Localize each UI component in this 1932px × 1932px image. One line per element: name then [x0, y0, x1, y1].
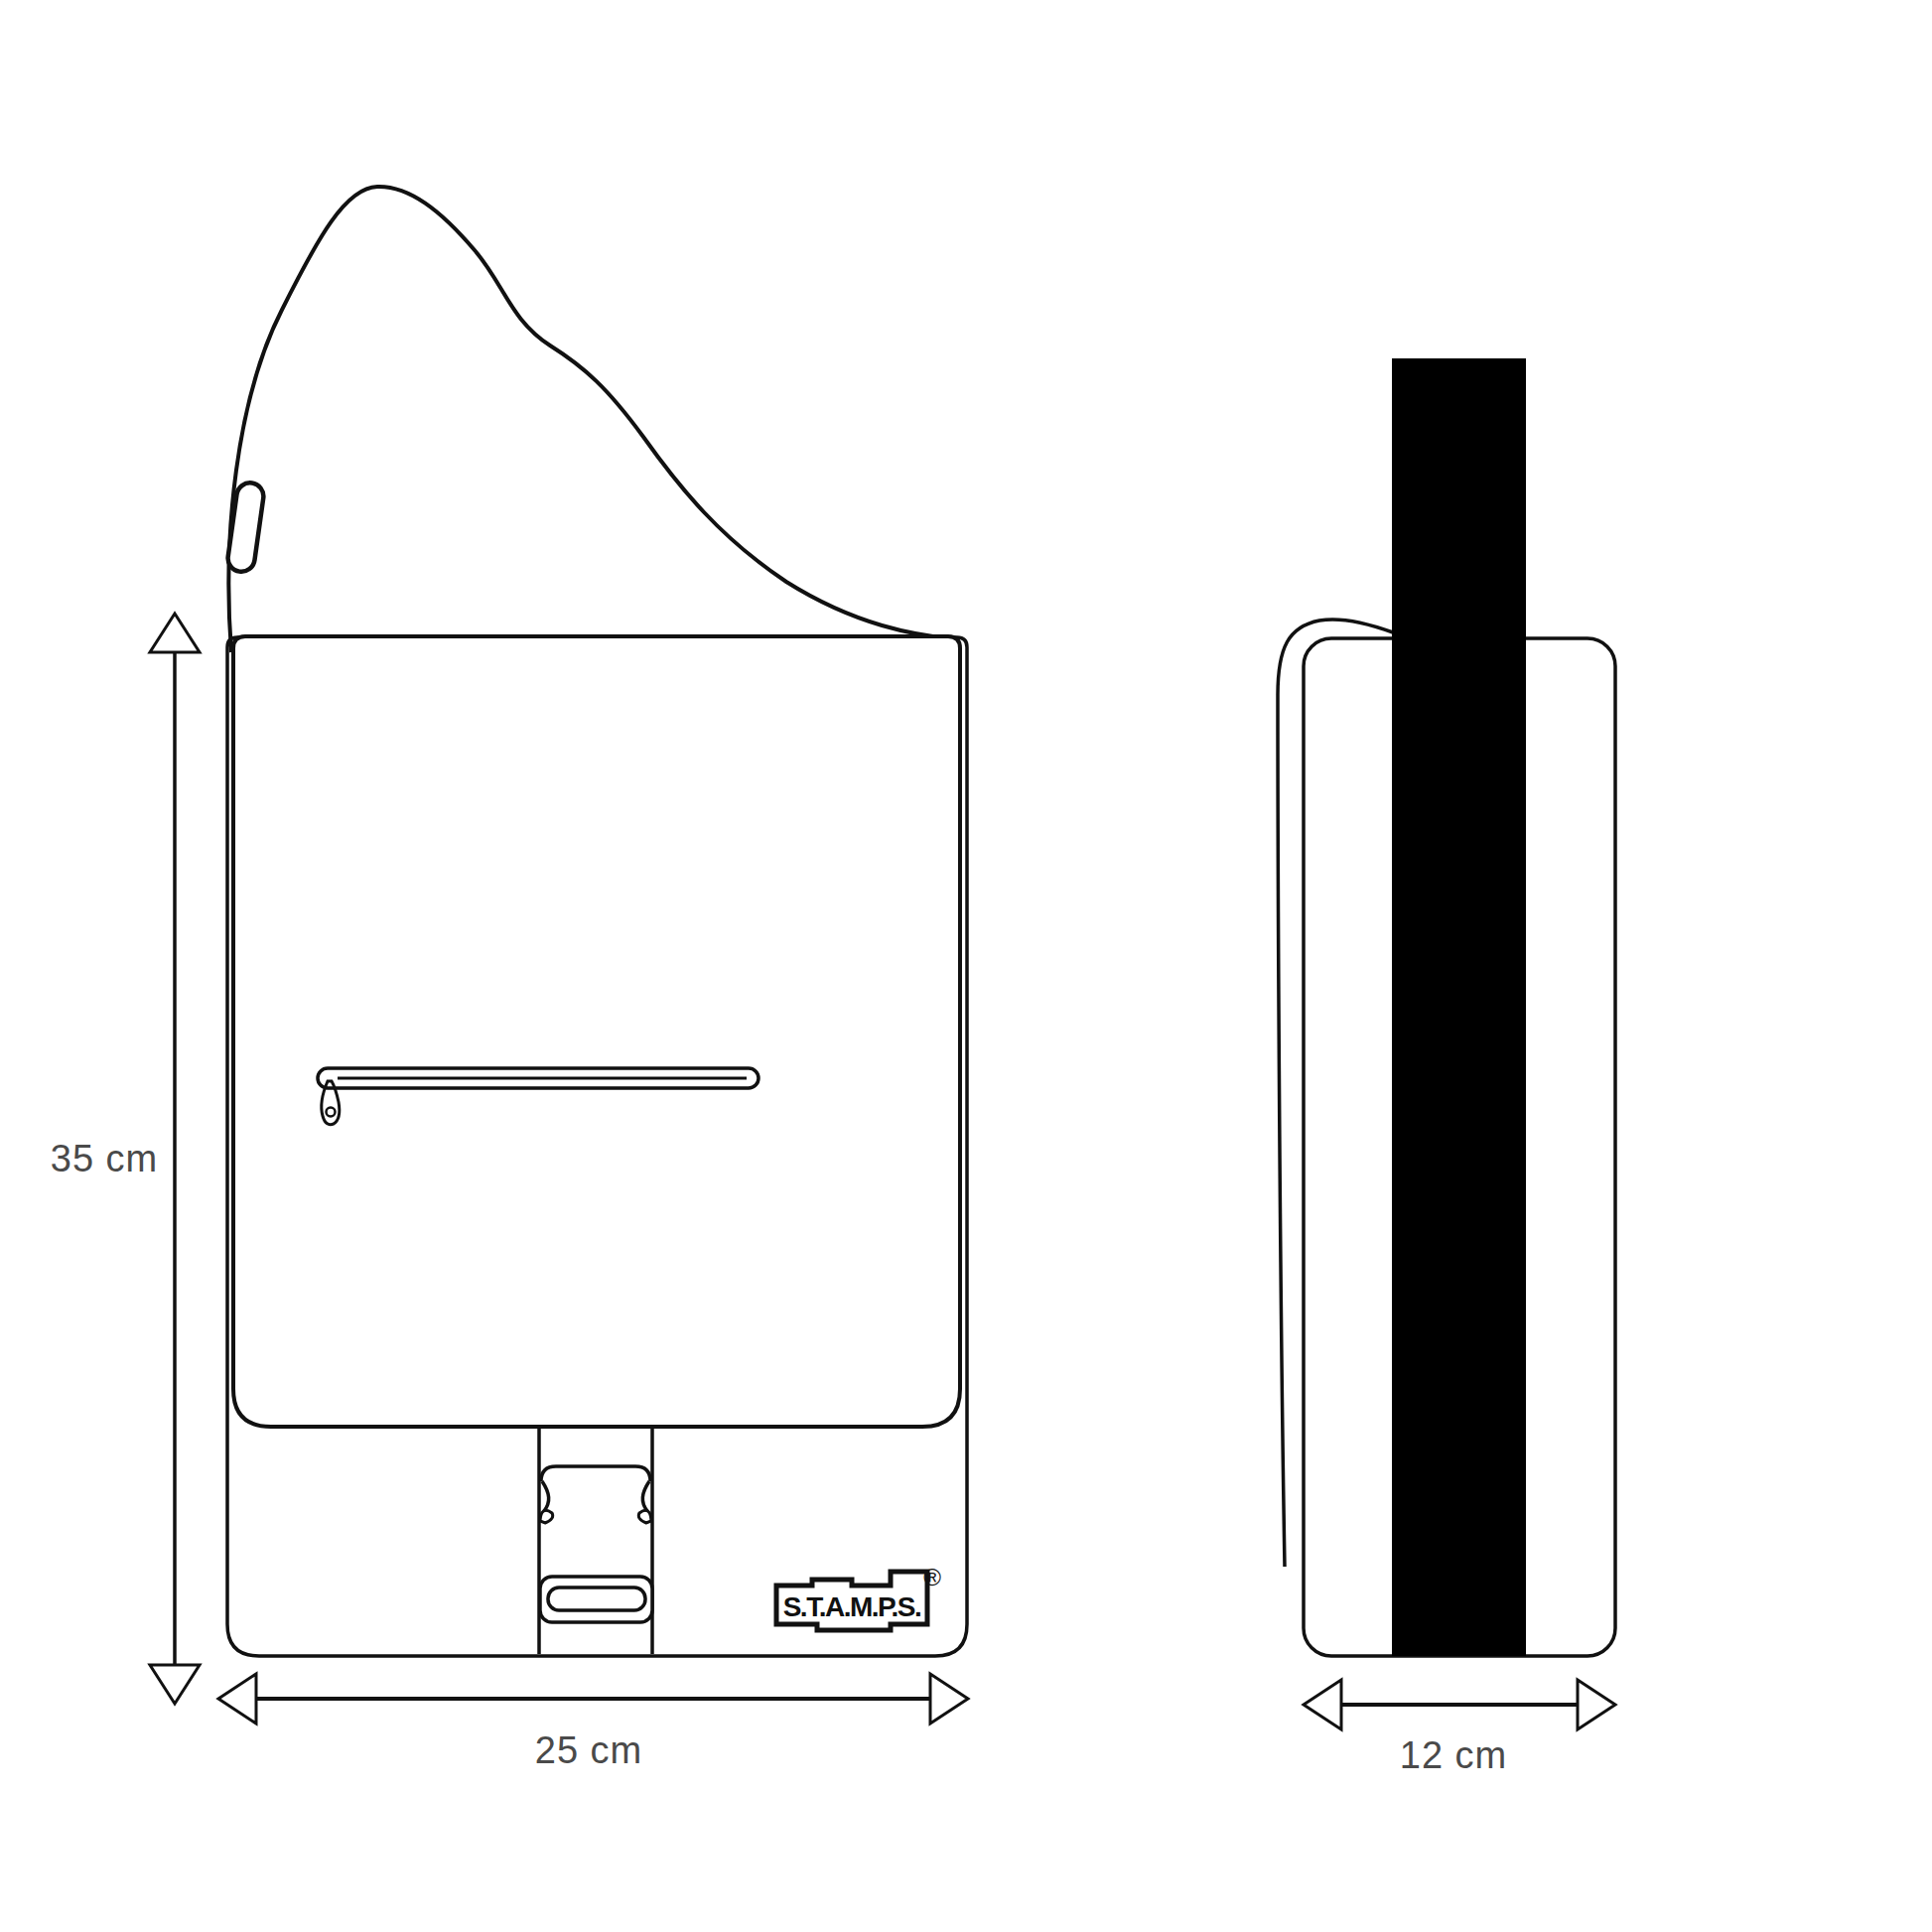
front-width-arrow-left-icon: [218, 1674, 256, 1724]
buckle-ear-left: [540, 1510, 553, 1523]
buckle-top-bar: [541, 1466, 650, 1481]
buckle-waist-left: [542, 1481, 549, 1511]
buckle-ear-right: [638, 1510, 651, 1523]
side-width-arrow-right-icon: [1578, 1680, 1615, 1729]
side-view: [1278, 358, 1615, 1656]
buckle-waist-right: [642, 1481, 649, 1511]
side-width-arrow-left-icon: [1304, 1680, 1341, 1729]
bag-flap-outline: [233, 636, 960, 1427]
height-arrow-up-icon: [150, 614, 200, 652]
bottom-strap-buckle: [539, 1429, 652, 1654]
side-width-dimension: [1304, 1680, 1615, 1729]
front-width-arrow-right-icon: [930, 1674, 968, 1724]
bag-dimension-diagram-page: { "diagram": { "front_view": { "height_l…: [0, 0, 1932, 1932]
side-flap-edge: [1278, 620, 1393, 1567]
height-arrow-down-icon: [150, 1665, 200, 1704]
bag-technical-drawing: S.T.A.M.P.S. ®: [0, 0, 1932, 1932]
brand-logo-text: S.T.A.M.P.S.: [783, 1591, 921, 1622]
height-label: 35 cm: [15, 1138, 194, 1180]
width-label: 25 cm: [499, 1729, 678, 1772]
shoulder-strap-outline: [228, 187, 956, 652]
side-width-label: 12 cm: [1364, 1734, 1543, 1777]
brand-logo: S.T.A.M.P.S. ®: [776, 1564, 941, 1630]
registered-trademark: ®: [923, 1564, 941, 1590]
buckle-slider: [540, 1577, 652, 1622]
side-strap: [1392, 358, 1526, 1656]
front-width-dimension: [218, 1674, 968, 1724]
front-view: S.T.A.M.P.S. ®: [226, 187, 967, 1656]
